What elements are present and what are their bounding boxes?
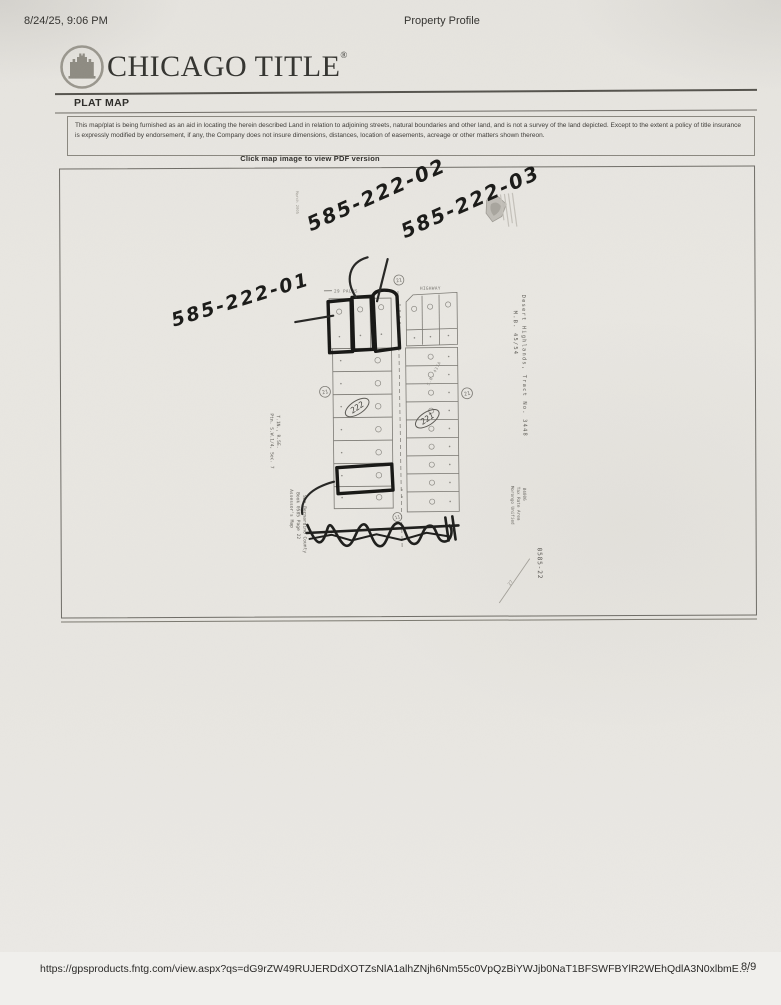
page-indicator: 8/9 [741, 961, 756, 973]
map-caption: Click map image to view PDF version [60, 154, 560, 163]
print-timestamp: 8/24/25, 9:06 PM [24, 15, 108, 27]
chicago-title-castle-icon [58, 43, 106, 91]
brand-name: CHICAGO TITLE [107, 50, 340, 83]
registered-mark: ® [340, 50, 347, 60]
disclaimer-text: This map/plat is being furnished as an a… [68, 117, 754, 140]
document-title: Property Profile [404, 15, 480, 27]
section-title: PLAT MAP [74, 97, 129, 109]
brand-wordmark: CHICAGO TITLE® [107, 50, 347, 84]
footer-url: https://gpsproducts.fntg.com/view.aspx?q… [40, 963, 749, 975]
disclaimer-box: This map/plat is being furnished as an a… [67, 116, 755, 156]
